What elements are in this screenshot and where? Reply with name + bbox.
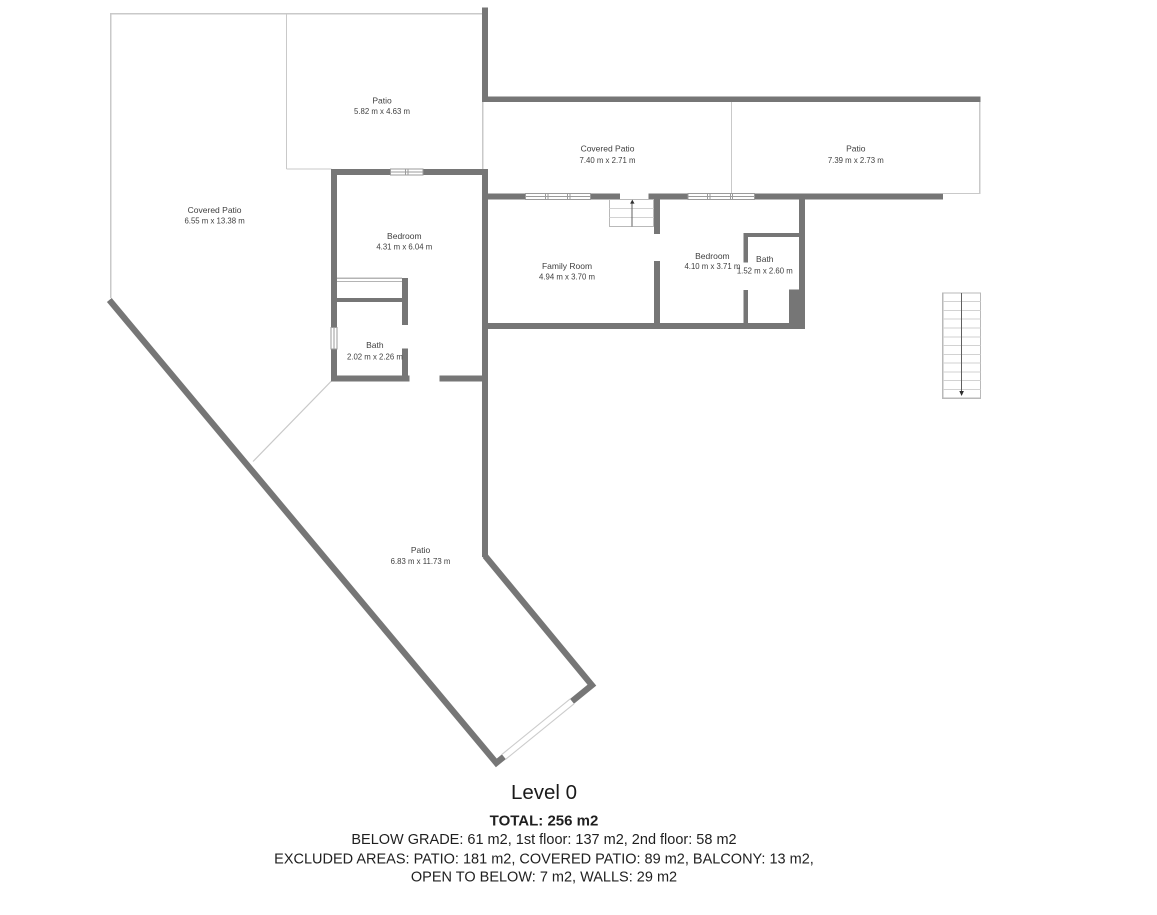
svg-text:4.10 m x 3.71 m: 4.10 m x 3.71 m [684,262,740,271]
svg-text:Bath: Bath [756,254,774,264]
svg-text:4.94 m x 3.70 m: 4.94 m x 3.70 m [539,273,595,282]
svg-text:Family Room: Family Room [542,261,592,271]
svg-text:Bath: Bath [366,340,384,350]
svg-text:BELOW GRADE: 61 m2, 1st floor:: BELOW GRADE: 61 m2, 1st floor: 137 m2, 2… [351,832,736,848]
svg-text:1.52 m x 2.60 m: 1.52 m x 2.60 m [737,266,793,275]
svg-text:Bedroom: Bedroom [387,231,422,241]
svg-text:2.02 m x 2.26 m: 2.02 m x 2.26 m [347,352,403,361]
svg-text:7.40 m x 2.71 m: 7.40 m x 2.71 m [580,156,636,165]
svg-text:EXCLUDED AREAS: PATIO: 181 m2,: EXCLUDED AREAS: PATIO: 181 m2, COVERED P… [274,851,814,867]
svg-text:6.83 m x 11.73 m: 6.83 m x 11.73 m [391,557,451,566]
svg-text:Patio: Patio [372,95,392,105]
svg-text:5.82 m x 4.63 m: 5.82 m x 4.63 m [354,107,410,116]
svg-text:OPEN TO BELOW: 7 m2, WALLS: 29: OPEN TO BELOW: 7 m2, WALLS: 29 m2 [411,870,677,886]
svg-text:Level 0: Level 0 [511,781,577,804]
svg-text:Bedroom: Bedroom [695,251,730,261]
svg-text:TOTAL: 256 m2: TOTAL: 256 m2 [490,812,599,829]
svg-text:Patio: Patio [846,143,866,153]
svg-text:4.31 m x 6.04 m: 4.31 m x 6.04 m [376,243,432,252]
svg-text:7.39 m x 2.73 m: 7.39 m x 2.73 m [828,156,884,165]
svg-text:Covered Patio: Covered Patio [581,143,635,153]
svg-text:Patio: Patio [411,545,431,555]
svg-text:Covered Patio: Covered Patio [188,205,242,215]
svg-text:6.55 m x 13.38 m: 6.55 m x 13.38 m [184,217,244,226]
